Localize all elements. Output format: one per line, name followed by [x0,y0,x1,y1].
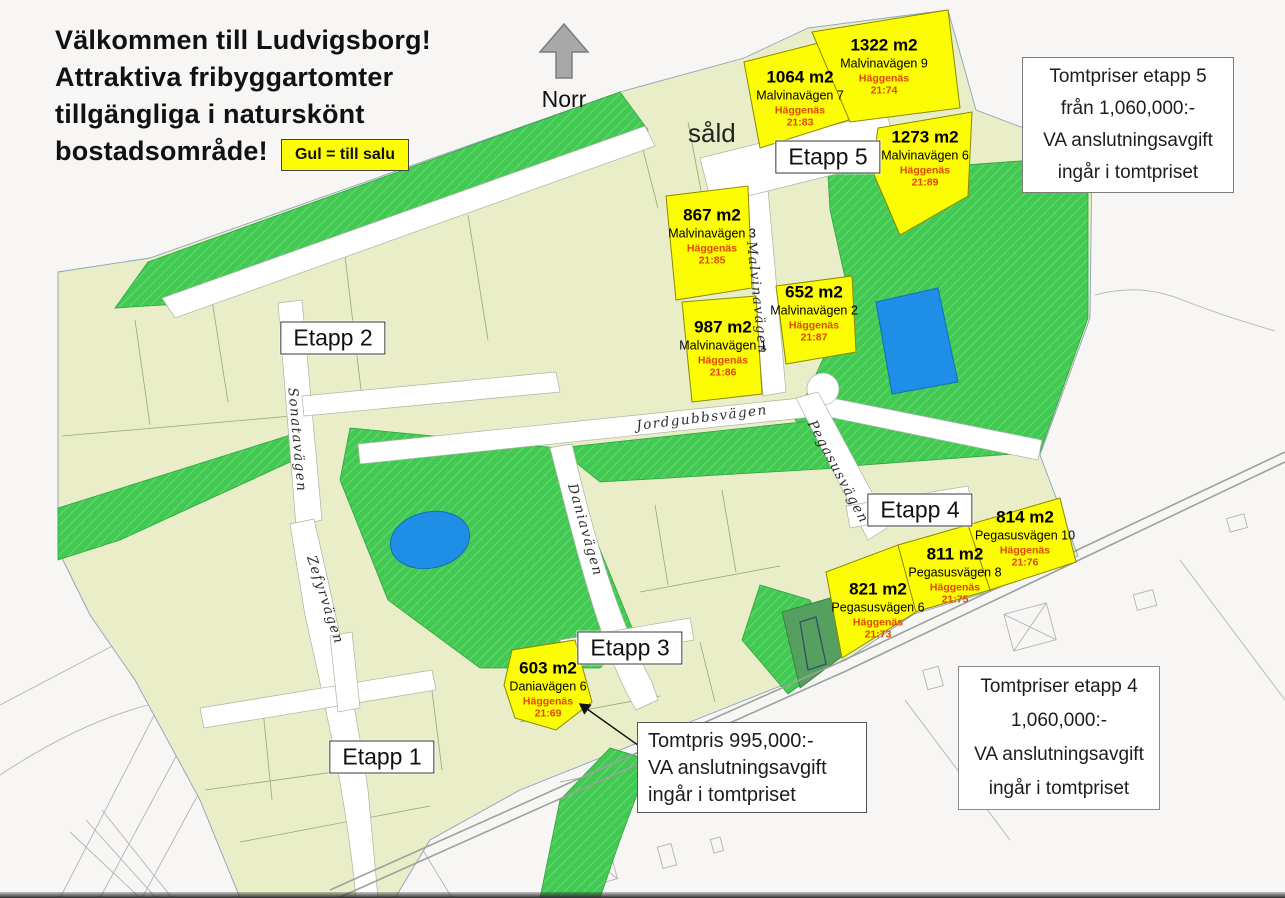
plot-parcel: 21:73 [831,628,924,640]
plot-label-1322: 1322 m2 Malvinavägen 9 Häggenäs 21:74 [840,35,928,96]
stage-label-etapp2: Etapp 2 [280,322,385,355]
plot-parcel: 21:87 [770,331,858,343]
plot-area: 1273 m2 [881,127,969,147]
stage-label-etapp4: Etapp 4 [867,494,972,527]
plot-label-867: 867 m2 Malvinavägen 3 Häggenäs 21:85 [668,205,756,266]
price-box-tomtpris: Tomtpris 995,000:- VA anslutningsavgift … [637,722,867,813]
plot-parcel: 21:85 [668,254,756,266]
title-line: tillgängliga i naturskönt [55,96,505,133]
plot-parcel: 21:69 [509,707,586,719]
plot-municipality: Häggenäs [756,104,844,116]
plot-area: 814 m2 [975,507,1075,527]
price-line: ingår i tomtpriset [1023,157,1233,189]
plot-area: 811 m2 [908,544,1001,564]
stage-label-etapp5: Etapp 5 [775,141,880,174]
price-line: ingår i tomtpriset [648,782,866,809]
plot-municipality: Häggenäs [881,164,969,176]
plot-address: Malvinavägen 2 [770,303,858,317]
north-indicator: Norr [533,20,595,113]
price-line: Tomtpriser etapp 5 [1023,61,1233,93]
sold-label: såld [688,118,736,149]
plot-municipality: Häggenäs [770,319,858,331]
plot-address: Malvinavägen 3 [668,226,756,240]
price-box-etapp5: Tomtpriser etapp 5 från 1,060,000:- VA a… [1022,57,1234,193]
plot-address: Daniavägen 6 [509,679,586,693]
north-arrow-icon [533,20,595,82]
price-line: ingår i tomtpriset [959,772,1159,806]
price-line: från 1,060,000:- [1023,93,1233,125]
plot-area: 1064 m2 [756,67,844,87]
site-plan-page: Välkommen till Ludvigsborg! Attraktiva f… [0,0,1285,898]
title-line: Välkommen till Ludvigsborg! [55,22,505,59]
price-box-etapp4: Tomtpriser etapp 4 1,060,000:- VA anslut… [958,666,1160,810]
price-line: VA anslutningsavgift [648,755,866,782]
plot-address: Pegasusvägen 8 [908,565,1001,579]
legend-badge: Gul = till salu [281,139,409,171]
plot-address: Malvinavägen 6 [881,148,969,162]
plot-address: Pegasusvägen 10 [975,528,1075,542]
price-line: Tomtpriser etapp 4 [959,670,1159,704]
page-title: Välkommen till Ludvigsborg! Attraktiva f… [55,22,505,170]
plot-municipality: Häggenäs [668,242,756,254]
plot-address: Malvinavägen 9 [840,56,928,70]
plot-parcel: 21:74 [840,84,928,96]
title-line: bostadsområde! [55,133,505,170]
plot-parcel: 21:89 [881,176,969,188]
price-line: VA anslutningsavgift [959,738,1159,772]
plot-area: 652 m2 [770,282,858,302]
plot-parcel: 21:86 [679,366,767,378]
plot-area: 821 m2 [831,579,924,599]
plot-label-652: 652 m2 Malvinavägen 2 Häggenäs 21:87 [770,282,858,343]
price-line: Tomtpris 995,000:- [648,728,866,755]
plot-municipality: Häggenäs [509,695,586,707]
plot-parcel: 21:83 [756,116,844,128]
plot-label-987: 987 m2 Malvinavägen 1 Häggenäs 21:86 [679,317,767,378]
plot-address: Malvinavägen 7 [756,88,844,102]
north-label: Norr [533,86,595,113]
stage-label-etapp1: Etapp 1 [329,741,434,774]
plot-area: 867 m2 [668,205,756,225]
plot-address: Pegasusvägen 6 [831,600,924,614]
plot-area: 603 m2 [509,658,586,678]
plot-area: 987 m2 [679,317,767,337]
plot-municipality: Häggenäs [831,616,924,628]
plot-municipality: Häggenäs [840,72,928,84]
plot-label-1273: 1273 m2 Malvinavägen 6 Häggenäs 21:89 [881,127,969,188]
price-line: 1,060,000:- [959,704,1159,738]
plot-label-603: 603 m2 Daniavägen 6 Häggenäs 21:69 [509,658,586,719]
stage-label-etapp3: Etapp 3 [577,632,682,665]
plot-label-1064: 1064 m2 Malvinavägen 7 Häggenäs 21:83 [756,67,844,128]
plot-label-821: 821 m2 Pegasusvägen 6 Häggenäs 21:73 [831,579,924,640]
plot-municipality: Häggenäs [679,354,767,366]
title-line: Attraktiva fribyggartomter [55,59,505,96]
price-line: VA anslutningsavgift [1023,125,1233,157]
plot-address: Malvinavägen 1 [679,338,767,352]
bottom-edge-bar [0,892,1285,898]
plot-area: 1322 m2 [840,35,928,55]
